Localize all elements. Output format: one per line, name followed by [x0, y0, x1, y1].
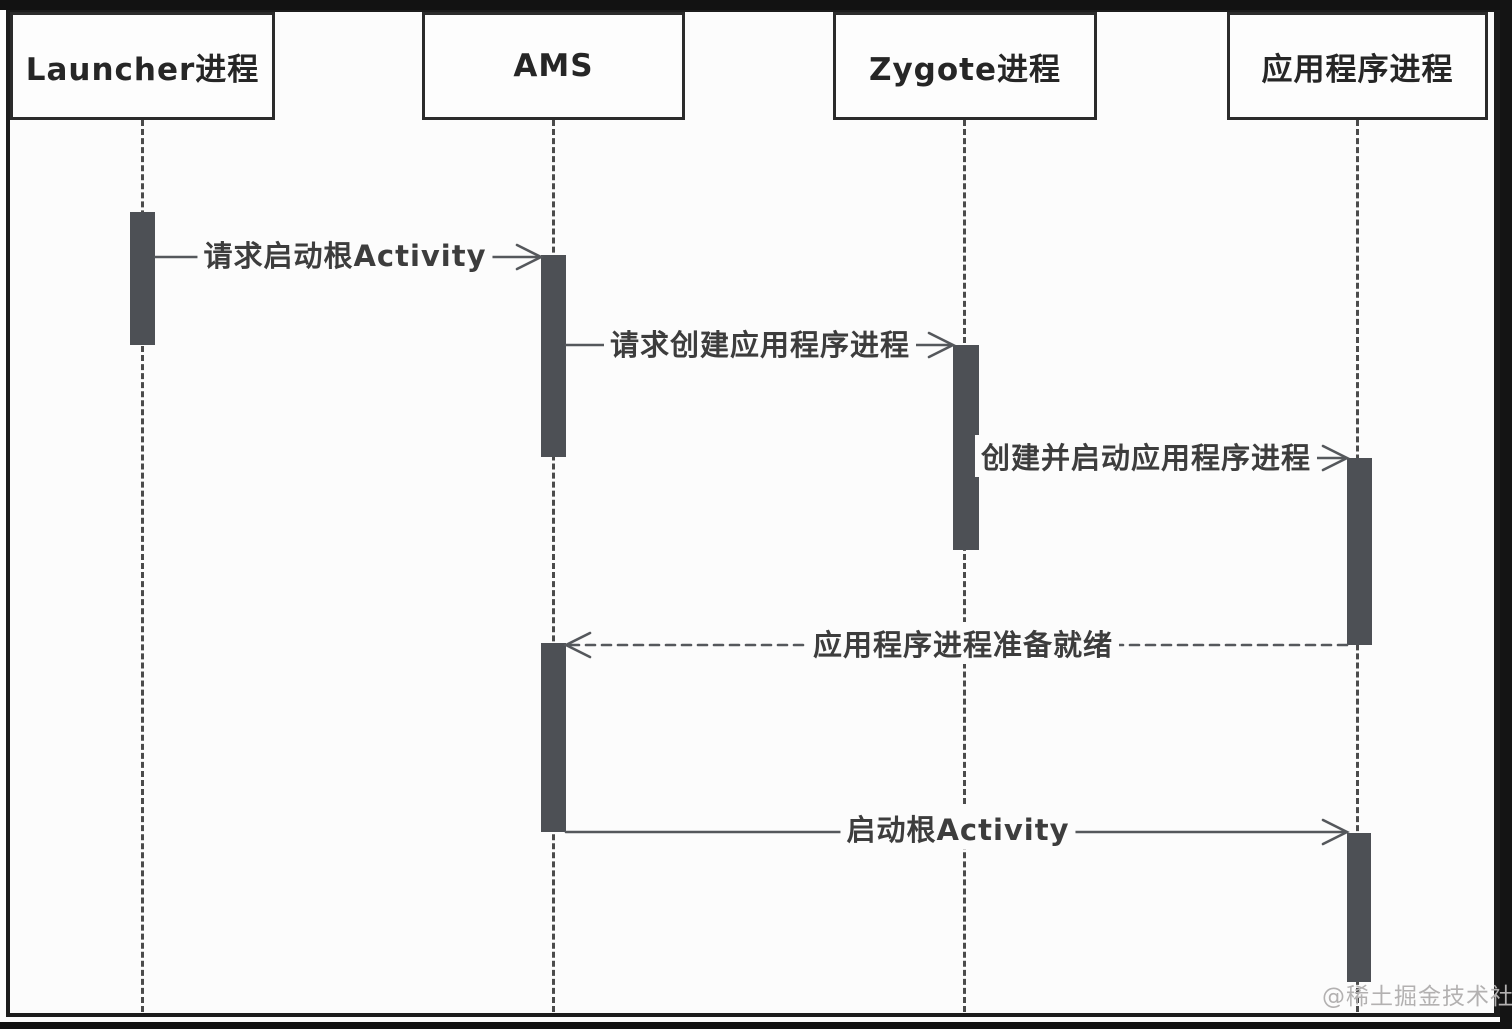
- photo-edge-right: [1500, 0, 1512, 1029]
- message-label-1: 请求启动根Activity: [197, 233, 492, 275]
- participant-label-app: 应用程序进程: [1262, 44, 1454, 89]
- message-label-2: 请求创建应用程序进程: [604, 322, 916, 364]
- lifeline-ams: [552, 120, 555, 1012]
- message-label-4: 应用程序进程准备就绪: [807, 622, 1119, 664]
- sequence-diagram: Launcher进程 AMS Zygote进程 应用程序进程: [0, 0, 1512, 1029]
- activation-bar-launcher: [130, 212, 155, 345]
- photo-edge-top: [0, 0, 1512, 10]
- photo-edge-bottom: [0, 1022, 1512, 1029]
- activation-bar-app-1: [1347, 458, 1372, 645]
- participant-box-ams: AMS: [422, 12, 685, 120]
- message-label-3: 创建并启动应用程序进程: [975, 435, 1317, 477]
- activation-bar-ams-2: [541, 643, 566, 832]
- participant-label-zygote: Zygote进程: [869, 44, 1061, 89]
- participant-label-ams: AMS: [513, 48, 593, 84]
- watermark: @稀土掘金技术社区: [1322, 977, 1512, 1011]
- participant-box-app: 应用程序进程: [1227, 12, 1488, 120]
- lifeline-zygote: [963, 120, 966, 1012]
- message-label-5: 启动根Activity: [840, 807, 1075, 849]
- activation-bar-app-2: [1347, 833, 1371, 982]
- participant-box-zygote: Zygote进程: [833, 12, 1097, 120]
- participant-label-launcher: Launcher进程: [26, 44, 260, 89]
- activation-bar-ams-1: [541, 255, 566, 457]
- diagram-frame: [6, 6, 1500, 1017]
- participant-box-launcher: Launcher进程: [10, 12, 275, 120]
